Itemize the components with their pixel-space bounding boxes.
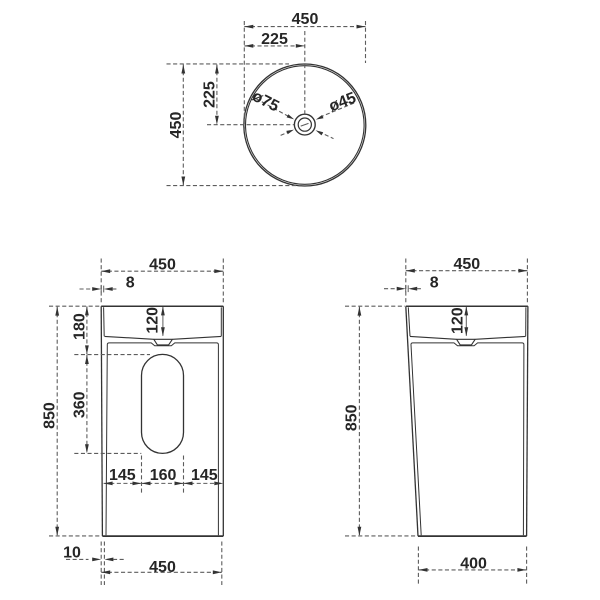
svg-text:450: 450 [168,112,185,139]
svg-text:225: 225 [261,31,288,48]
svg-text:160: 160 [150,467,177,484]
svg-text:450: 450 [149,257,176,274]
svg-text:145: 145 [109,467,136,484]
svg-text:120: 120 [450,307,467,334]
svg-text:ø75: ø75 [249,88,281,116]
svg-text:850: 850 [344,404,361,431]
svg-text:10: 10 [63,544,81,561]
svg-text:ø45: ø45 [327,90,359,116]
svg-text:145: 145 [191,467,218,484]
svg-text:360: 360 [72,391,89,418]
svg-text:225: 225 [201,81,218,108]
svg-text:8: 8 [430,274,439,291]
svg-text:450: 450 [453,256,480,273]
svg-text:450: 450 [149,559,176,576]
svg-text:850: 850 [42,402,59,429]
svg-text:180: 180 [72,313,89,340]
svg-text:8: 8 [126,275,135,292]
svg-text:400: 400 [460,555,487,572]
svg-text:120: 120 [145,307,162,334]
svg-text:450: 450 [292,11,319,28]
